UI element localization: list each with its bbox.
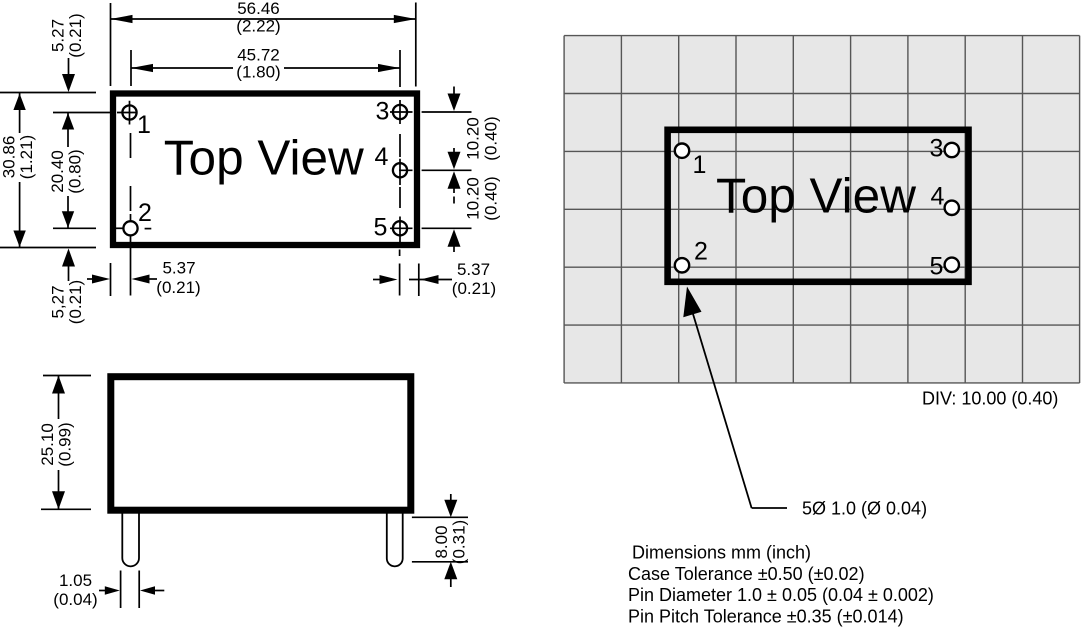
svg-text:(0.99): (0.99) [56,422,75,466]
svg-text:5Ø 1.0 (Ø 0.04): 5Ø 1.0 (Ø 0.04) [802,499,927,519]
svg-text:Pin Diameter 1.0 ± 0.05 (0.04: Pin Diameter 1.0 ± 0.05 (0.04 ± 0.002) [628,585,934,605]
svg-text:1: 1 [693,151,707,179]
svg-text:5: 5 [930,253,944,281]
svg-text:(1.80): (1.80) [236,63,280,82]
svg-text:DIV: 10.00 (0.40): DIV: 10.00 (0.40) [922,389,1058,409]
svg-text:(0.21): (0.21) [66,280,85,324]
svg-text:Top View: Top View [716,169,916,224]
svg-text:(0.40): (0.40) [482,116,501,160]
svg-text:1: 1 [137,111,151,139]
svg-text:25.10: 25.10 [38,423,57,466]
svg-text:(0.40): (0.40) [482,176,501,220]
svg-text:5,27: 5,27 [49,285,68,318]
svg-text:(0.80): (0.80) [66,149,85,193]
svg-text:Dimensions mm (inch): Dimensions mm (inch) [632,543,811,563]
svg-text:8.00: 8.00 [432,525,451,558]
svg-text:Top View: Top View [164,131,364,186]
svg-text:56.46: 56.46 [237,0,280,18]
svg-text:(0.04): (0.04) [53,590,97,609]
svg-text:2: 2 [138,199,152,227]
svg-text:1.05: 1.05 [59,571,92,590]
svg-text:5.37: 5.37 [457,260,490,279]
svg-text:3: 3 [930,135,944,163]
svg-text:5.27: 5.27 [49,19,68,52]
svg-text:4: 4 [375,143,389,171]
svg-text:10.20: 10.20 [464,117,483,160]
svg-text:30.86: 30.86 [0,136,19,179]
svg-text:(2.22): (2.22) [236,17,280,36]
svg-text:Case Tolerance ±0.50 (±0.02): Case Tolerance ±0.50 (±0.02) [628,564,865,584]
svg-text:5.37: 5.37 [162,259,195,278]
svg-text:5: 5 [374,214,388,242]
svg-text:3: 3 [376,98,390,126]
svg-text:2: 2 [694,238,708,266]
svg-text:(0.21): (0.21) [66,13,85,57]
svg-text:(0.21): (0.21) [156,278,200,297]
svg-text:10.20: 10.20 [464,177,483,220]
svg-text:20.40: 20.40 [48,150,67,193]
svg-text:(0.31): (0.31) [449,520,468,564]
svg-text:(1.21): (1.21) [17,135,36,179]
svg-text:Pin Pitch Tolerance ±0.35 (±0.: Pin Pitch Tolerance ±0.35 (±0.014) [628,606,904,626]
svg-text:4: 4 [931,183,945,211]
svg-text:(0.21): (0.21) [452,279,496,298]
